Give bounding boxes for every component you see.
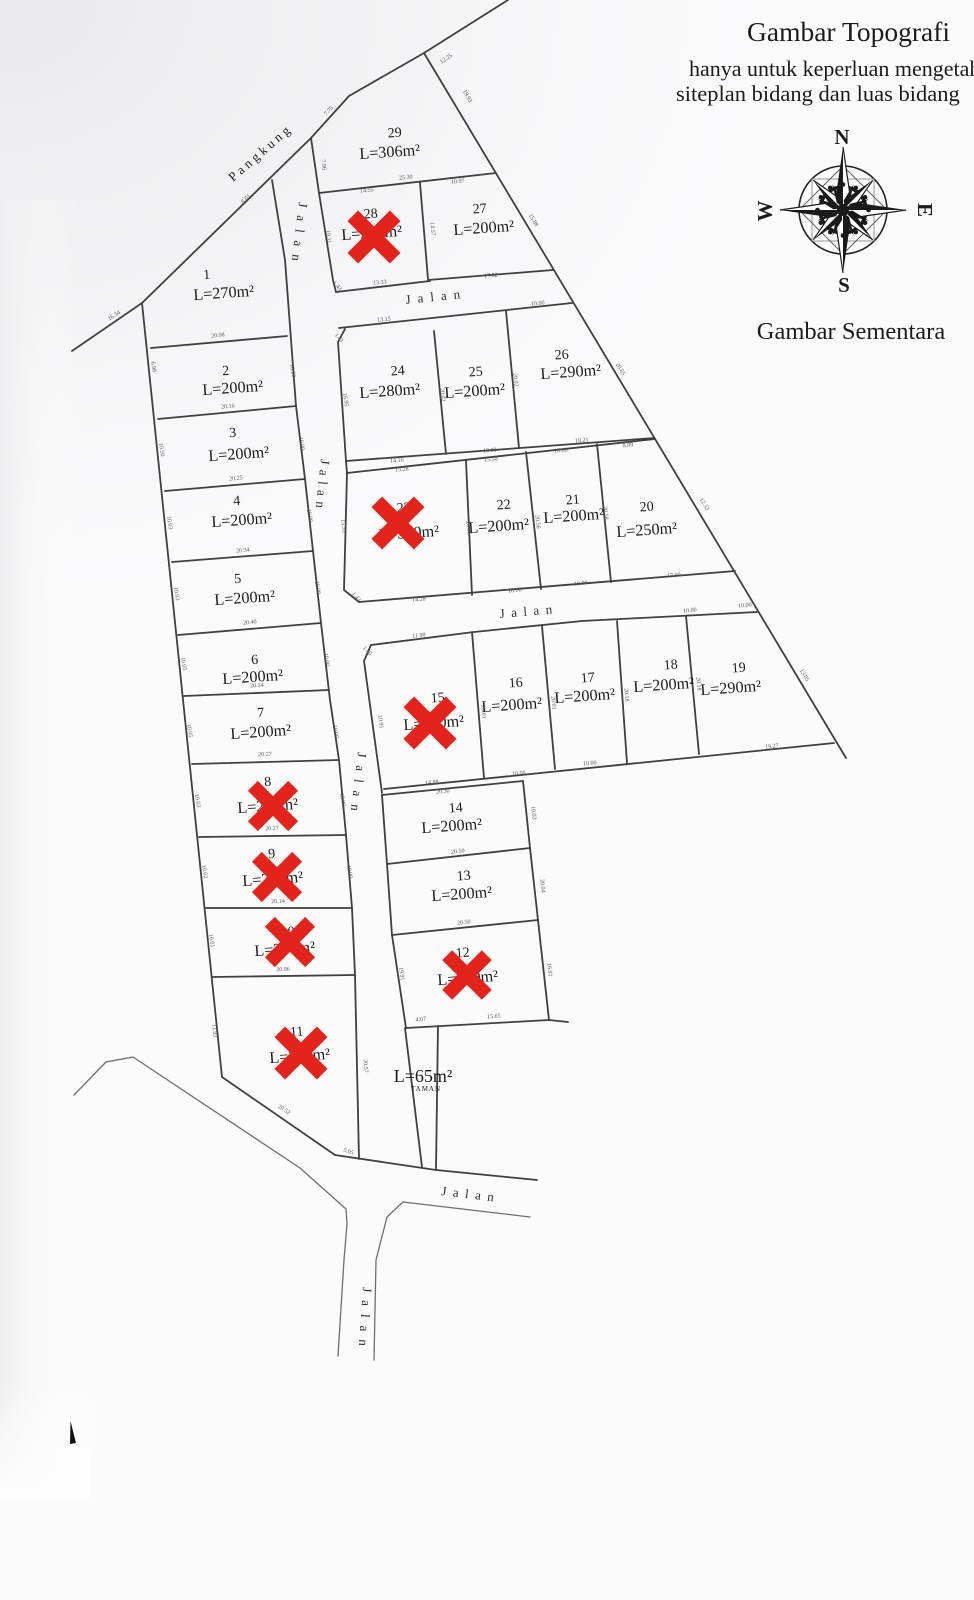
svg-text:7: 7 — [257, 706, 265, 721]
svg-text:S: S — [838, 273, 850, 297]
svg-text:2: 2 — [222, 364, 230, 379]
svg-text:13.15: 13.15 — [377, 317, 391, 324]
svg-text:E: E — [913, 203, 937, 217]
svg-text:22: 22 — [496, 498, 511, 514]
svg-text:W: W — [753, 201, 777, 222]
svg-text:8.09: 8.09 — [622, 443, 633, 450]
svg-text:15.50: 15.50 — [484, 457, 498, 464]
svg-text:16: 16 — [508, 676, 523, 692]
svg-text:29: 29 — [387, 126, 402, 142]
svg-text:4: 4 — [233, 494, 241, 509]
svg-text:20.34: 20.34 — [250, 683, 264, 690]
svg-text:20.18: 20.18 — [694, 677, 701, 691]
svg-text:Gambar Sementara: Gambar Sementara — [757, 318, 946, 345]
svg-text:N: N — [834, 125, 849, 149]
svg-text:TAMAN: TAMAN — [411, 1085, 441, 1093]
svg-text:15.65: 15.65 — [487, 1014, 501, 1021]
svg-text:14: 14 — [448, 801, 463, 817]
svg-text:24: 24 — [390, 364, 405, 380]
svg-text:L=65m²: L=65m² — [394, 1066, 453, 1086]
svg-text:20.27: 20.27 — [265, 826, 279, 832]
svg-text:10.00: 10.00 — [574, 580, 588, 587]
svg-text:20: 20 — [639, 500, 654, 516]
svg-text:20.27: 20.27 — [258, 752, 272, 758]
svg-text:20.25: 20.25 — [229, 475, 243, 482]
svg-text:20.34: 20.34 — [236, 547, 250, 554]
svg-text:20.06: 20.06 — [276, 967, 290, 973]
svg-text:20.30: 20.30 — [436, 788, 450, 795]
svg-text:10.97: 10.97 — [451, 178, 465, 185]
svg-text:13.33: 13.33 — [373, 280, 387, 287]
svg-text:10.00: 10.00 — [508, 587, 522, 594]
svg-text:15.28: 15.28 — [395, 466, 409, 473]
svg-text:10.00: 10.00 — [583, 760, 597, 767]
svg-text:11.98: 11.98 — [412, 632, 426, 639]
svg-text:14.28: 14.28 — [412, 596, 426, 603]
svg-text:10.00: 10.00 — [512, 770, 526, 777]
svg-text:19.27: 19.27 — [765, 743, 779, 750]
svg-text:19: 19 — [731, 661, 746, 677]
svg-text:18: 18 — [663, 658, 678, 674]
svg-text:14.88: 14.88 — [425, 779, 439, 786]
svg-text:hanya untuk keperluan mengetah: hanya untuk keperluan mengetahui — [689, 56, 974, 81]
svg-text:10.00: 10.00 — [483, 448, 497, 455]
svg-text:4.67: 4.67 — [415, 1016, 426, 1023]
svg-text:17: 17 — [580, 671, 595, 687]
svg-text:27: 27 — [472, 202, 487, 218]
svg-text:20.08: 20.08 — [211, 332, 225, 339]
svg-text:17.52: 17.52 — [484, 273, 498, 280]
svg-text:1: 1 — [203, 268, 211, 283]
svg-text:6: 6 — [251, 653, 259, 668]
svg-text:10.00: 10.00 — [554, 448, 568, 455]
svg-text:10.00: 10.00 — [531, 300, 545, 307]
svg-text:14.16: 14.16 — [390, 457, 404, 464]
svg-text:26: 26 — [554, 348, 569, 364]
svg-text:8: 8 — [264, 775, 272, 790]
svg-text:Gambar Topografi: Gambar Topografi — [747, 16, 950, 47]
svg-text:20.57: 20.57 — [362, 1059, 369, 1073]
svg-text:20.01: 20.01 — [549, 696, 556, 710]
svg-text:10.00: 10.00 — [738, 602, 752, 609]
svg-text:18.21: 18.21 — [575, 437, 589, 444]
svg-text:20.14: 20.14 — [271, 899, 285, 905]
svg-text:10.00: 10.00 — [683, 607, 697, 614]
svg-text:20.16: 20.16 — [221, 403, 235, 410]
svg-text:13: 13 — [456, 869, 471, 885]
svg-text:17.90: 17.90 — [667, 572, 681, 579]
svg-text:5: 5 — [234, 572, 242, 587]
svg-text:20.01: 20.01 — [479, 705, 486, 719]
svg-text:3: 3 — [229, 426, 237, 441]
svg-text:20.18: 20.18 — [622, 688, 629, 702]
svg-text:25: 25 — [468, 365, 483, 381]
svg-text:siteplan bidang dan luas bidan: siteplan bidang dan luas bidang — [676, 81, 960, 106]
svg-text:20.40: 20.40 — [243, 619, 257, 626]
